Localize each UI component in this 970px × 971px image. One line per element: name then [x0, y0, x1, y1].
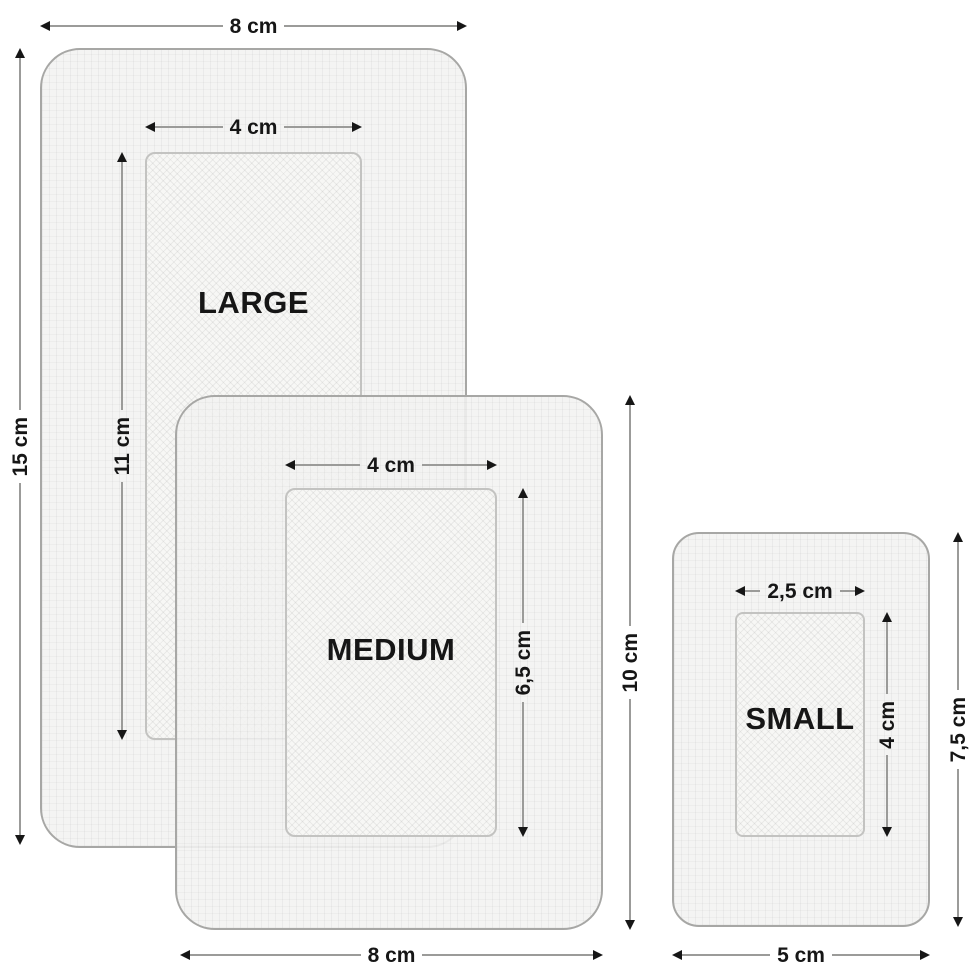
dimension-line	[886, 622, 888, 694]
dimension-line	[284, 25, 457, 27]
dimension-label: 4 cm	[223, 117, 285, 138]
dimension-line	[121, 162, 123, 410]
dimension-label: 15 cm	[10, 410, 31, 484]
arrow-right-icon	[487, 460, 497, 470]
large-pad-height-dimension: 11 cm	[111, 152, 133, 740]
arrow-up-icon	[882, 612, 892, 622]
small-outer-width-dimension: 5 cm	[672, 944, 930, 966]
arrow-down-icon	[117, 730, 127, 740]
small-pad-width-dimension: 2,5 cm	[735, 580, 865, 602]
small-pad-height-dimension: 4 cm	[876, 612, 898, 837]
arrow-up-icon	[117, 152, 127, 162]
large-outer-width-dimension: 8 cm	[40, 15, 467, 37]
arrow-right-icon	[457, 21, 467, 31]
dimension-label: 11 cm	[112, 410, 133, 482]
large-plaster-label: LARGE	[145, 287, 362, 318]
arrow-left-icon	[285, 460, 295, 470]
medium-outer-width-dimension: 8 cm	[180, 944, 603, 966]
arrow-left-icon	[40, 21, 50, 31]
dimension-label: 8 cm	[361, 945, 423, 966]
dimension-line	[745, 590, 760, 592]
small-outer-height-dimension: 7,5 cm	[947, 532, 969, 927]
dimension-label: 10 cm	[620, 626, 641, 700]
medium-outer-height-dimension: 10 cm	[619, 395, 641, 930]
medium-pad-width-dimension: 4 cm	[285, 454, 497, 476]
arrow-up-icon	[625, 395, 635, 405]
dimension-line	[190, 954, 361, 956]
arrow-down-icon	[882, 827, 892, 837]
large-pad-width-dimension: 4 cm	[145, 116, 362, 138]
arrow-up-icon	[518, 488, 528, 498]
arrow-right-icon	[593, 950, 603, 960]
dimension-line	[629, 405, 631, 626]
arrow-left-icon	[145, 122, 155, 132]
dimension-line	[957, 769, 959, 917]
arrow-down-icon	[625, 920, 635, 930]
large-outer-height-dimension: 15 cm	[9, 48, 31, 845]
dimension-line	[629, 699, 631, 920]
dimension-label: 4 cm	[877, 694, 898, 756]
arrow-right-icon	[920, 950, 930, 960]
arrow-left-icon	[672, 950, 682, 960]
dimension-line	[957, 542, 959, 690]
arrow-left-icon	[180, 950, 190, 960]
dimension-line	[840, 590, 855, 592]
dimension-line	[295, 464, 360, 466]
dimension-line	[682, 954, 770, 956]
dimension-label: 8 cm	[223, 16, 285, 37]
arrow-down-icon	[518, 827, 528, 837]
dimension-line	[155, 126, 223, 128]
dimension-label: 5 cm	[770, 945, 832, 966]
dimension-label: 7,5 cm	[948, 690, 969, 769]
dimension-line	[886, 755, 888, 827]
dimension-label: 6,5 cm	[513, 623, 534, 702]
dimension-line	[50, 25, 223, 27]
arrow-right-icon	[855, 586, 865, 596]
dimension-line	[284, 126, 352, 128]
plaster-size-diagram: LARGE MEDIUM SMALL 8 cm 4 cm 15 cm 11 cm	[0, 0, 970, 971]
dimension-line	[422, 954, 593, 956]
arrow-up-icon	[15, 48, 25, 58]
medium-pad-height-dimension: 6,5 cm	[512, 488, 534, 837]
arrow-right-icon	[352, 122, 362, 132]
dimension-line	[422, 464, 487, 466]
dimension-line	[19, 58, 21, 410]
dimension-line	[121, 482, 123, 730]
dimension-line	[19, 483, 21, 835]
dimension-line	[832, 954, 920, 956]
dimension-label: 4 cm	[360, 455, 422, 476]
dimension-label: 2,5 cm	[760, 581, 839, 602]
arrow-left-icon	[735, 586, 745, 596]
arrow-up-icon	[953, 532, 963, 542]
dimension-line	[522, 702, 524, 827]
small-plaster-label: SMALL	[735, 703, 865, 734]
arrow-down-icon	[953, 917, 963, 927]
arrow-down-icon	[15, 835, 25, 845]
medium-plaster-label: MEDIUM	[285, 634, 497, 665]
dimension-line	[522, 498, 524, 623]
